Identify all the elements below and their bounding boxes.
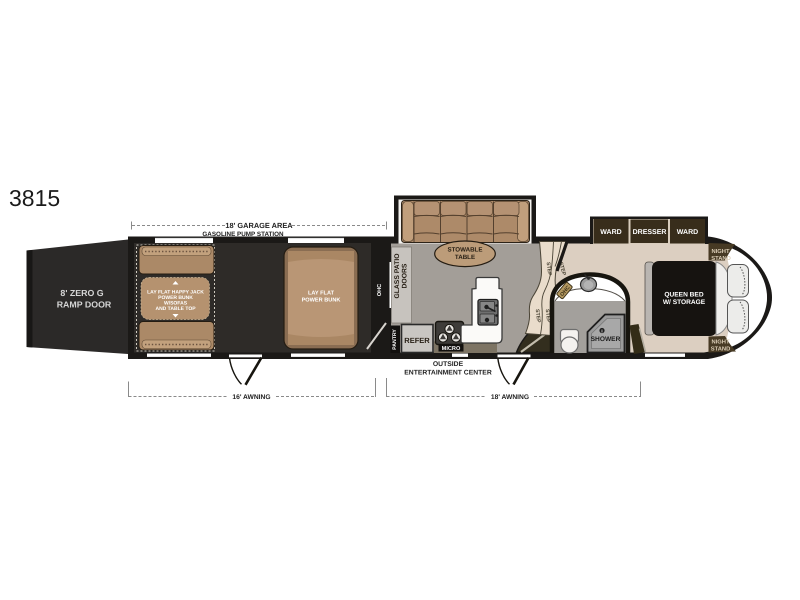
svg-text:GLASS PATIO: GLASS PATIO — [394, 253, 401, 298]
svg-text:OHC: OHC — [377, 284, 383, 296]
svg-text:18' AWNING: 18' AWNING — [491, 394, 529, 401]
svg-text:DRESSER: DRESSER — [633, 229, 667, 236]
svg-text:DOORS: DOORS — [401, 263, 408, 288]
svg-text:W/ STORAGE: W/ STORAGE — [663, 299, 706, 306]
svg-text:WARD: WARD — [600, 229, 621, 236]
svg-text:PANTRY: PANTRY — [392, 329, 398, 350]
svg-text:STOWABLE: STOWABLE — [448, 247, 483, 254]
svg-text:NIGHT: NIGHT — [711, 248, 729, 255]
svg-text:NIGHT: NIGHT — [711, 339, 729, 346]
svg-text:TABLE: TABLE — [455, 254, 475, 261]
svg-text:MICRO: MICRO — [442, 346, 461, 352]
svg-text:RAMP DOOR: RAMP DOOR — [57, 300, 112, 310]
svg-text:OUTSIDE: OUTSIDE — [433, 361, 464, 368]
svg-text:3815: 3815 — [9, 185, 60, 211]
svg-text:POWER BUNK: POWER BUNK — [302, 298, 341, 304]
svg-text:WARD: WARD — [677, 229, 698, 236]
svg-text:REFER: REFER — [404, 336, 430, 345]
svg-text:18' GARAGE AREA: 18' GARAGE AREA — [225, 221, 293, 230]
svg-text:STAND: STAND — [711, 255, 731, 262]
svg-text:i: i — [601, 329, 602, 334]
svg-text:ENTERTAINMENT CENTER: ENTERTAINMENT CENTER — [404, 370, 492, 377]
svg-text:QUEEN BED: QUEEN BED — [664, 292, 703, 299]
svg-text:16' AWNING: 16' AWNING — [232, 394, 270, 401]
svg-text:8' ZERO G: 8' ZERO G — [60, 288, 103, 298]
svg-text:AND TABLE TOP: AND TABLE TOP — [155, 306, 196, 312]
svg-text:STAND: STAND — [711, 345, 731, 352]
svg-text:SHOWER: SHOWER — [591, 336, 621, 343]
svg-text:LAY FLAT: LAY FLAT — [308, 291, 335, 297]
